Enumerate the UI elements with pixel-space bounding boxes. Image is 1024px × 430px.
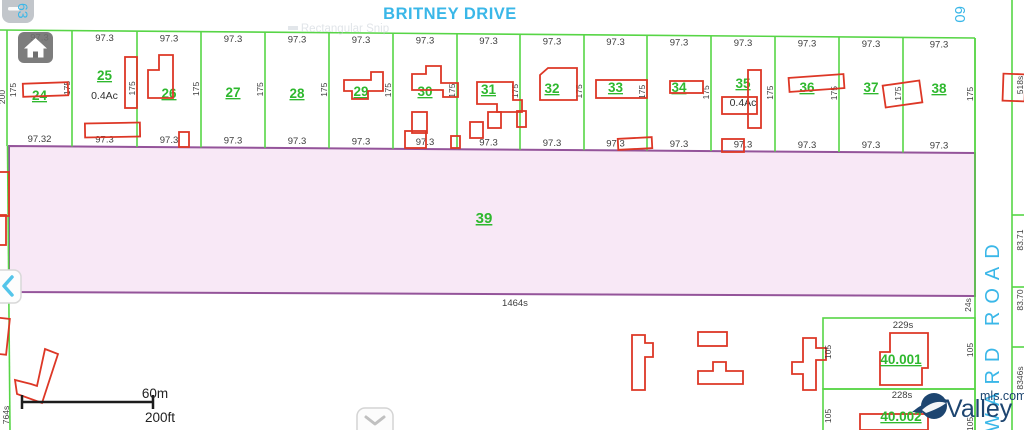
building-outline <box>632 335 653 390</box>
parcel-area-label: 0.4Ac <box>730 97 757 109</box>
parcel-bottom-dimension: 97.3 <box>606 138 625 149</box>
parcel-number[interactable]: 25 <box>97 68 113 83</box>
right-strip-labels: 518s 83.71 83.70 8346s <box>1015 76 1024 390</box>
parcel-top-dimension: 97.3 <box>288 34 307 45</box>
parcel-number[interactable]: 40.001 <box>880 352 922 367</box>
route-number-63: 63 <box>15 3 31 19</box>
parcel-bottom-dimension: 97.3 <box>416 137 435 148</box>
route-chip-63: 63 <box>2 0 34 23</box>
snip-ghost: Rectangular Snip <box>288 23 389 35</box>
parcel-bottom-dimension: 97.3 <box>798 140 817 151</box>
parcel-40-001-top: 229s <box>893 320 914 331</box>
back-button[interactable] <box>0 270 21 303</box>
parcel-top-dimension: 97.3 <box>670 38 689 49</box>
parcel-side-dimension: 175 <box>319 82 329 96</box>
parcel-top-dimension: 97.3 <box>479 36 498 47</box>
parcel-number[interactable]: 37 <box>863 80 878 95</box>
parcel-bottom-dimension: 97.3 <box>479 138 498 149</box>
building-outline <box>698 362 743 384</box>
building-outline <box>179 132 189 147</box>
parcel-top-dimension: 97.3 <box>798 39 817 50</box>
parcel-top-dimension: 97.3 <box>95 33 114 44</box>
parcel-top-dimension: 97.3 <box>416 36 435 47</box>
scale-metric: 60m <box>142 386 168 401</box>
parcel-side-dimension: 175 <box>765 85 775 99</box>
parcel-40-002-left: 105 <box>823 409 833 423</box>
parcel-number[interactable]: 32 <box>544 81 559 96</box>
street-name-britney-drive: BRITNEY DRIVE <box>383 5 517 23</box>
parcel-side-dimension: 175 <box>255 82 265 96</box>
parcel-bottom-dimension: 97.3 <box>543 138 562 149</box>
collapse-button[interactable] <box>357 408 393 430</box>
parcel-number[interactable]: 39 <box>476 210 493 227</box>
parcel-number[interactable]: 38 <box>931 81 947 96</box>
parcel-top-dimension: 97.3 <box>352 35 371 46</box>
parcel-top-dimension: 97.3 <box>543 37 562 48</box>
building-outline <box>792 338 826 390</box>
building-outline <box>0 215 6 245</box>
parcel-bottom-dimension: 97.3 <box>734 139 753 150</box>
right-dimension: 83.70 <box>1015 289 1024 311</box>
map-canvas: 97.397.322417597.397.3251750.4Ac97.397.3… <box>0 0 1024 430</box>
building-outline <box>451 136 460 148</box>
parcel-39-right-dimension: 24s <box>963 298 973 312</box>
parcel-number[interactable]: 27 <box>225 85 240 100</box>
parcel-side-dimension: 175 <box>893 86 903 100</box>
parcel-side-dimension: 175 <box>127 81 137 95</box>
parcel-40-001-right: 105 <box>965 343 975 357</box>
building-outline <box>517 111 526 127</box>
parcel-bottom-dimension: 97.3 <box>160 135 179 146</box>
parcel-side-dimension: 175 <box>447 83 457 97</box>
parcel-row: 97.397.322417597.397.3251750.4Ac97.397.3… <box>7 30 975 153</box>
parcel-40-002-top: 228s <box>892 390 913 401</box>
logo-suffix: mls.com <box>980 389 1024 403</box>
parcel-number[interactable]: 36 <box>799 80 815 95</box>
parcel-bottom-dimension: 97.3 <box>288 136 307 147</box>
parcel-number[interactable]: 28 <box>289 86 305 101</box>
parcel-number[interactable]: 29 <box>353 84 368 99</box>
parcel-area-label: 0.4Ac <box>91 90 118 102</box>
route-number-60: 60 <box>951 6 968 23</box>
right-dimension: 8346s <box>1015 366 1024 389</box>
snip-icon <box>288 26 298 30</box>
parcel-bottom-dimension: 97.3 <box>224 136 243 147</box>
parcel-map-viewer: 97.397.322417597.397.3251750.4Ac97.397.3… <box>0 0 1024 430</box>
parcel-side-dimension: 175 <box>637 85 647 99</box>
parcel-side-dimension: 175 <box>574 84 584 98</box>
parcel-top-dimension: 97.3 <box>734 38 753 49</box>
building-outline <box>789 74 845 92</box>
building-outline <box>15 349 58 403</box>
parcel-number[interactable]: 30 <box>417 84 432 99</box>
parcel-40-001-left: 105 <box>823 345 833 359</box>
parcel-top-dimension: 97.3 <box>930 40 949 51</box>
building-outline <box>470 122 483 138</box>
parcel-39-length: 1464s <box>502 298 528 309</box>
right-dimension: 83.71 <box>1015 229 1024 251</box>
parcel-bottom-dimension: 97.32 <box>28 134 52 145</box>
home-button[interactable] <box>18 32 53 63</box>
valleymls-logo: Valley mls.com <box>912 389 1024 423</box>
building-outline <box>488 112 501 128</box>
left-depth-dimension: 200 <box>0 90 7 104</box>
parcel-top-dimension: 97.3 <box>160 33 179 44</box>
parcel-side-dimension: 175 <box>191 82 201 96</box>
right-dimension: 518s <box>1015 76 1024 94</box>
parcel-top-dimension: 97.3 <box>862 39 881 50</box>
parcel-bottom-dimension: 97.3 <box>862 140 881 151</box>
scale-bar <box>22 395 153 409</box>
parcel-number[interactable]: 31 <box>481 82 497 97</box>
parcel-bottom-dimension: 97.3 <box>670 139 689 150</box>
left-side-dimension: 175 <box>8 83 18 97</box>
parcel-bottom-dimension: 97.3 <box>352 137 371 148</box>
parcel-top-dimension: 97.3 <box>224 34 243 45</box>
parcel-top-dimension: 97.3 <box>606 37 625 48</box>
building-outline <box>412 112 427 133</box>
snip-ghost-text: Rectangular Snip <box>301 23 389 35</box>
parcel-number[interactable]: 33 <box>608 80 624 95</box>
left-bottom-dimension: 764s <box>1 406 11 424</box>
scale-imperial: 200ft <box>145 410 175 425</box>
parcel-side-dimension: 175 <box>510 84 520 98</box>
parcel-bottom-dimension: 97.3 <box>930 141 949 152</box>
parcel-side-dimension: 175 <box>383 83 393 97</box>
parcel-side-dimension: 175 <box>965 87 975 101</box>
building-outline <box>698 332 727 346</box>
